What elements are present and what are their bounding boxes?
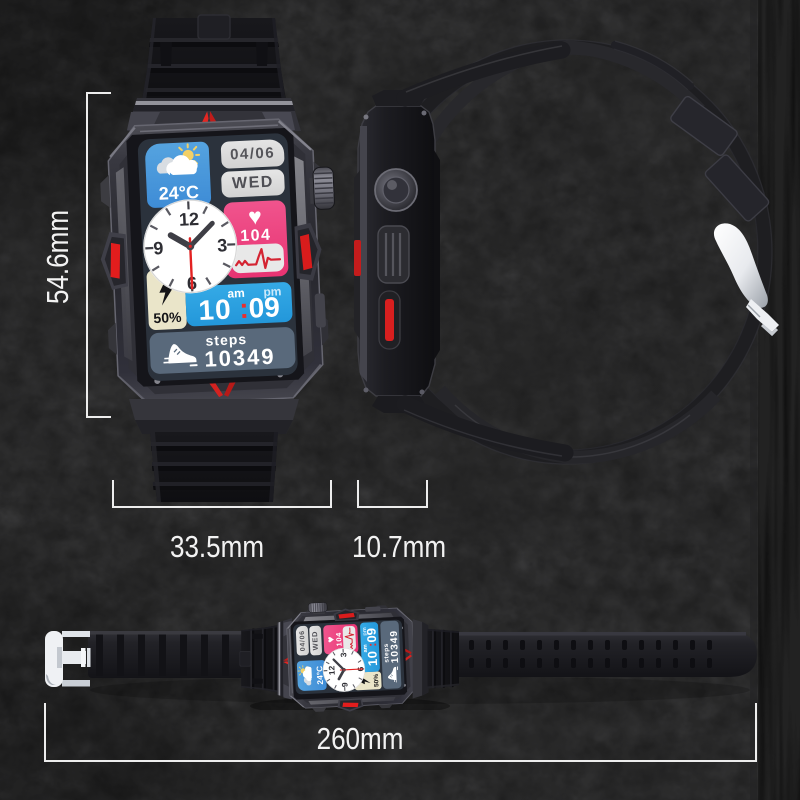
svg-text:12: 12 [179, 209, 200, 230]
svg-text:3: 3 [217, 235, 228, 255]
svg-text:9: 9 [341, 682, 350, 688]
svg-text:12: 12 [327, 665, 336, 675]
svg-text:3: 3 [339, 652, 348, 658]
svg-text:9: 9 [153, 238, 164, 258]
